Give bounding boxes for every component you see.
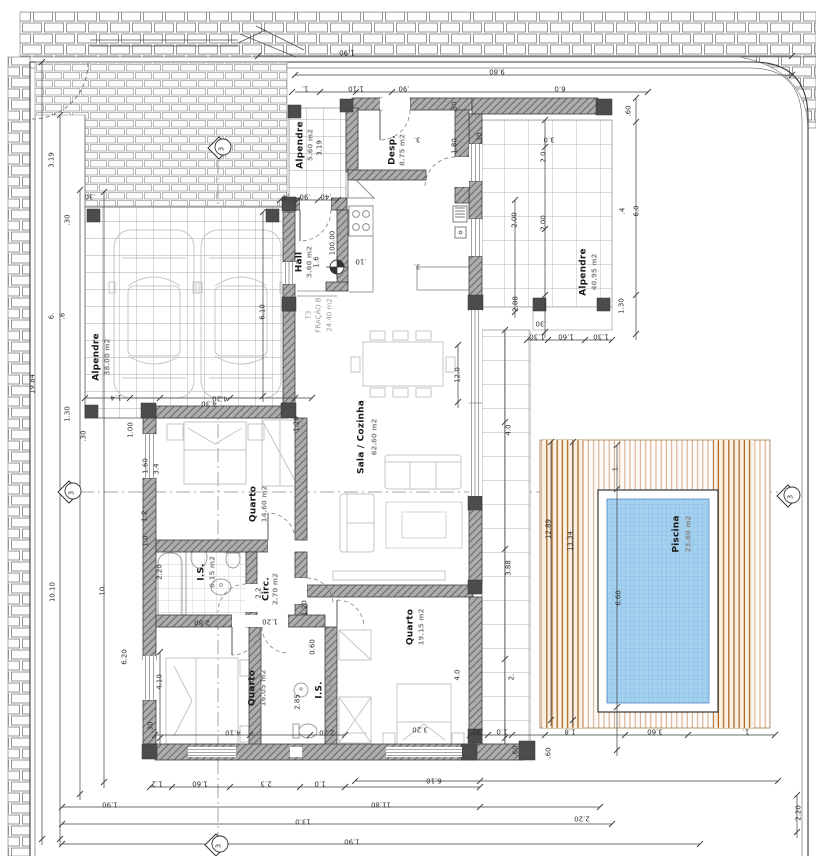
floor-plan-canvas: Alpendre38.00 m2Alpendre5.60 m2Desp.8.75… [0, 0, 816, 856]
rug [386, 502, 462, 548]
pool [598, 490, 718, 712]
dining-table [351, 331, 455, 397]
wardrobe [262, 420, 298, 486]
wardrobe [339, 630, 371, 660]
kitchen-island [417, 267, 474, 290]
hall-step [297, 291, 337, 296]
toilet [293, 724, 317, 738]
sink [294, 683, 308, 697]
kitchen-appliances [453, 206, 467, 238]
floor-plan-drawing [0, 0, 816, 856]
bed [166, 658, 256, 744]
tv-bench [333, 571, 445, 580]
bed [383, 684, 464, 746]
cooktop [349, 206, 373, 236]
bed [167, 422, 264, 484]
kitchen-counter [349, 205, 373, 292]
sofa [340, 455, 461, 552]
driveway-paving [35, 62, 287, 207]
